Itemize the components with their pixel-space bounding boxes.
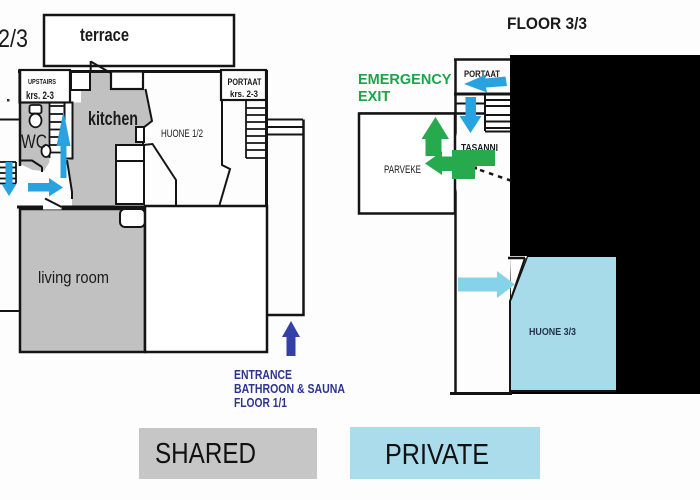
svg-text:EXIT: EXIT (358, 89, 390, 105)
svg-text:FLOOR 3/3: FLOOR 3/3 (507, 14, 587, 33)
svg-text:PARVEKE: PARVEKE (384, 164, 421, 176)
svg-text:krs. 2-3: krs. 2-3 (230, 89, 258, 100)
svg-text:HUONE 1/2: HUONE 1/2 (161, 128, 203, 140)
svg-text:2/3: 2/3 (0, 25, 28, 53)
svg-text:HUONE 3/3: HUONE 3/3 (529, 327, 576, 338)
svg-text:kitchen: kitchen (88, 109, 138, 130)
svg-text:SHARED: SHARED (155, 438, 256, 470)
svg-text:krs. 2-3: krs. 2-3 (26, 90, 54, 102)
svg-text:PORTAAT: PORTAAT (228, 77, 262, 88)
svg-text:living room: living room (38, 268, 109, 287)
svg-text:terrace: terrace (80, 25, 129, 45)
svg-text:BATHROON & SAUNA: BATHROON & SAUNA (234, 382, 345, 396)
svg-text:EMERGENCY: EMERGENCY (358, 72, 452, 88)
svg-text:WC: WC (21, 132, 47, 153)
svg-text:FLOOR 1/1: FLOOR 1/1 (234, 396, 287, 410)
svg-text:ENTRANCE: ENTRANCE (234, 368, 292, 382)
svg-text:UPSTAIRS: UPSTAIRS (28, 79, 56, 86)
svg-text:PRIVATE: PRIVATE (385, 439, 489, 471)
